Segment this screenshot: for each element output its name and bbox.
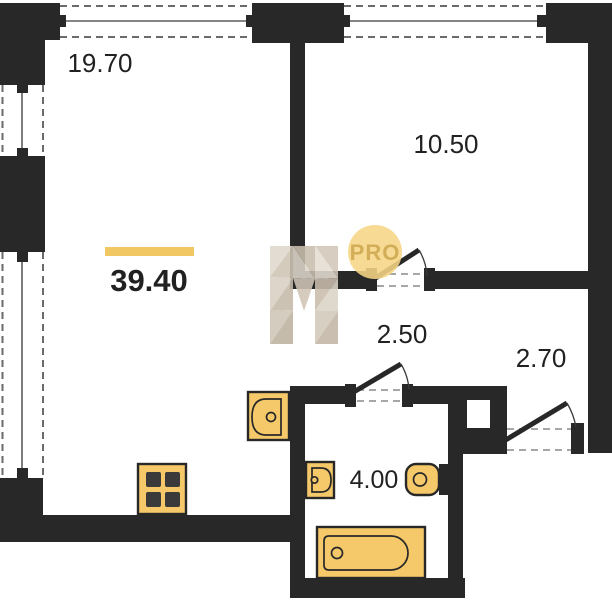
window-post bbox=[56, 15, 66, 27]
pro-badge-text: PRO bbox=[350, 240, 401, 265]
watermark-pro-badge: PRO bbox=[348, 225, 402, 279]
wall-left-upper bbox=[0, 3, 45, 85]
hallway-area-label: 2.50 bbox=[377, 319, 428, 349]
wall-right bbox=[588, 40, 612, 453]
watermark-logo-n bbox=[270, 246, 338, 344]
kitchen-sink-icon bbox=[248, 392, 289, 440]
bedroom-area-label: 10.50 bbox=[413, 129, 478, 159]
window-post bbox=[17, 468, 28, 478]
window-living-left-lower bbox=[3, 252, 44, 478]
living-area-label: 19.70 bbox=[67, 48, 132, 78]
window-bedroom-top bbox=[340, 6, 547, 37]
wall-top-middle-pier bbox=[252, 3, 344, 43]
door-bathroom bbox=[345, 364, 413, 407]
window-post bbox=[17, 148, 28, 158]
window-post bbox=[340, 15, 350, 27]
shaft-niche bbox=[467, 400, 490, 428]
door-entry bbox=[494, 403, 584, 454]
window-post bbox=[537, 15, 547, 27]
total-area-label: 39.40 bbox=[110, 263, 188, 298]
floor-plan: 19.70 10.50 2.50 2.70 4.00 39.40 PRO bbox=[0, 0, 612, 600]
wall-top-right-pier bbox=[546, 3, 612, 43]
floor-plan-svg: 19.70 10.50 2.50 2.70 4.00 39.40 PRO bbox=[0, 0, 612, 600]
wall-bedroom-bottom-right bbox=[433, 271, 588, 289]
bathroom-area-label: 4.00 bbox=[350, 466, 399, 494]
wall-left-middle-pier bbox=[0, 156, 45, 252]
wall-bathroom-bottom bbox=[290, 578, 465, 598]
window-living-top bbox=[56, 6, 256, 37]
wall-bathroom-left bbox=[290, 386, 305, 598]
entry-area-label: 2.70 bbox=[516, 343, 567, 373]
bathroom-sink-icon bbox=[306, 462, 334, 498]
bathtub-icon bbox=[317, 527, 425, 578]
toilet-icon bbox=[406, 464, 450, 495]
window-living-left-upper bbox=[3, 83, 44, 158]
window-post bbox=[17, 252, 28, 262]
window-post bbox=[17, 83, 28, 93]
window-post bbox=[246, 15, 256, 27]
stove-icon bbox=[138, 464, 186, 514]
total-area-underline bbox=[105, 247, 194, 256]
wall-living-bottom bbox=[0, 515, 305, 542]
